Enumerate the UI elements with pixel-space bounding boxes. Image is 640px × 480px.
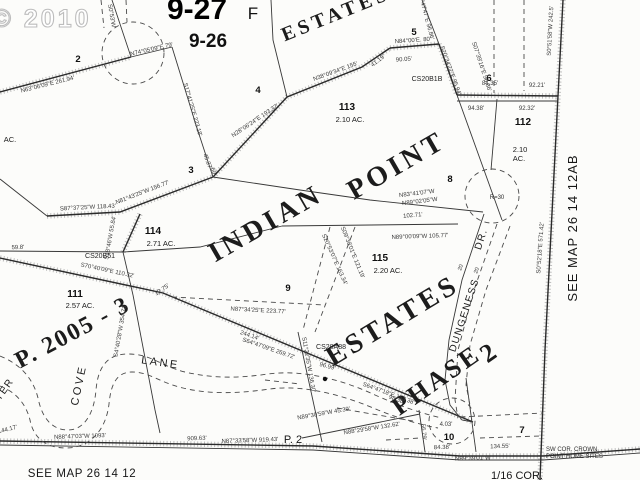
bearing-distance-label: 94.38' — [468, 106, 484, 112]
bearing-distance-label: N89°00'09"W 105.77' — [391, 233, 448, 241]
road-width-20-a: 20 — [457, 264, 465, 272]
bearing-distance-label: 84.38' — [434, 445, 450, 452]
survey-ref-cs20a88: CS20A88 — [316, 344, 346, 351]
bearing-distance-label: N87°33'58"W 919.43' — [221, 437, 278, 445]
parcel-7: 7 — [519, 425, 524, 436]
survey-ref-cs20b1b: CS20B1B — [412, 76, 443, 83]
parcel-3: 3 — [188, 165, 193, 176]
street-ter-partial: TER — [0, 376, 16, 402]
plat-boundary-line — [457, 95, 558, 96]
bearing-distance-label: N74°05'09"E 79' — [130, 42, 174, 58]
bearing-distance-label: N88°47'03"W 1093' — [54, 433, 106, 441]
dashed-survey-line — [172, 297, 325, 305]
bearing-distance-label: S17°41'25"E 223.18' — [182, 83, 203, 137]
see-map-26-14-12ab: SEE MAP 26 14 12AB — [565, 154, 580, 301]
parcel-line — [457, 95, 502, 220]
parcel-2: 2 — [75, 54, 80, 65]
parcel-4: 4 — [255, 85, 261, 96]
survey-monument-dot — [323, 377, 327, 381]
lot-112-acreage: 2.10 — [513, 145, 528, 154]
see-map-26-14-12: SEE MAP 26 14 12 — [28, 468, 136, 480]
parcel-line — [112, 0, 131, 57]
title-indian: INDIAN — [203, 179, 328, 269]
bearing-distance-label: 134.55' — [490, 444, 510, 451]
sixteenth-corner: 1/16 COR. — [491, 470, 543, 480]
bearing-distance-label: S20°34'22"E 95.94' — [438, 45, 461, 95]
lot-111-acreage: 2.57 AC. — [66, 301, 95, 310]
bearing-distance-label: 59.8' — [11, 245, 24, 251]
dashed-survey-line — [466, 226, 510, 405]
title-estates-top: ESTATES — [278, 0, 393, 46]
plat-map-svg: © 20109-279-26FESTATESINDIANPOINTESTATES… — [0, 0, 640, 480]
radius-30-label: R=30 — [490, 195, 505, 201]
parcel-line — [491, 99, 497, 170]
bearing-distance-label: S0°52'18"E 571.42' — [536, 222, 546, 274]
parcel-5: 5 — [411, 27, 417, 38]
page-2-ref: P. 2 — [284, 434, 302, 446]
bearing-distance-label: N89°30'59"W 45.39' — [297, 406, 351, 421]
bearing-distance-label: 84.35' — [482, 81, 498, 87]
lot-115-acreage: 2.20 AC. — [374, 266, 403, 275]
map-number-9-27: 9-27 — [167, 0, 227, 26]
bearing-distance-label: N89°39'01"W — [455, 455, 491, 462]
title-point: POINT — [342, 125, 452, 206]
parcel-line — [282, 224, 458, 226]
bearing-distance-label: S05°47'47"E 96.86' — [415, 0, 434, 40]
dashed-survey-line — [460, 413, 543, 417]
lot-number-112: 112 — [515, 117, 532, 128]
label-f: F — [248, 4, 258, 23]
bearing-distance-label: S20°53'07"E 163.34' — [320, 233, 348, 286]
bearing-distance-label: S11°22'35"W 136.30' — [300, 337, 316, 393]
lot-112-acreage-2: AC. — [513, 154, 526, 163]
lot-113-acreage: 2.10 AC. — [336, 115, 365, 124]
bearing-distance-label: 4.03' — [440, 422, 453, 428]
dashed-survey-line — [386, 438, 420, 440]
parcel-line — [0, 179, 47, 216]
bearing-distance-label: S0°51'58"W 242.5' — [547, 6, 556, 56]
bearing-distance-label: 102.71' — [403, 212, 423, 220]
partial-acreage-left: AC. — [4, 135, 17, 144]
parcel-8: 8 — [447, 174, 452, 185]
lot-114-acreage: 2.71 AC. — [147, 239, 176, 248]
parcel-line — [271, 0, 287, 97]
parcel-9: 9 — [285, 283, 290, 294]
map-number-9-26: 9-26 — [189, 31, 227, 52]
dashed-survey-line — [126, 0, 127, 22]
sw-corner-note-1: SW COR. CROWN — [546, 447, 597, 453]
road-width-20-b: 20 — [473, 267, 481, 275]
bearing-distance-label: N28°06'24"E 193.37' — [231, 103, 280, 139]
street-cove: COVE — [69, 364, 89, 407]
parcel-10: 10 — [444, 432, 455, 443]
dashed-survey-line — [480, 436, 540, 438]
street-dr: DR. — [473, 227, 490, 251]
bearing-distance-label: 90.05' — [396, 56, 413, 63]
copyright-watermark: © 2010 — [0, 5, 91, 33]
plat-boundary-shading — [213, 48, 390, 177]
dashed-survey-line — [101, 0, 104, 28]
plat-boundary-shading — [0, 441, 640, 456]
plat-boundary-line — [123, 214, 140, 252]
bearing-distance-label: N84°00'E. 80' — [395, 37, 432, 46]
dashed-survey-line — [265, 380, 300, 384]
sw-corner-note-2: POINT HOME SITES — [546, 454, 603, 460]
bearing-distance-label: 144.17' — [0, 425, 18, 436]
lot-number-113: 113 — [339, 102, 356, 113]
bearing-distance-label: N87°34'25"E 223.77' — [230, 307, 285, 316]
bearing-distance-label: 56.79' — [419, 424, 426, 441]
plat-boundary-line — [0, 57, 131, 92]
street-lane: LANE — [140, 354, 180, 371]
bearing-distance-label: S64°47'09"E 269.72' — [241, 337, 295, 361]
bearing-distance-label: 92.32' — [519, 106, 535, 112]
bearing-distance-label: 45.27' — [201, 153, 212, 170]
bearing-distance-label: N81°43'25"W 156.77' — [115, 180, 170, 206]
plat-map-page: © 20109-279-26FESTATESINDIANPOINTESTATES… — [0, 0, 640, 480]
bearing-distance-label: 909.63' — [187, 436, 207, 443]
bearing-distance-label: S18°46'W 55.84' — [104, 215, 118, 260]
bearing-distance-label: 92.21' — [529, 83, 545, 89]
lot-number-115: 115 — [372, 253, 389, 264]
lot-number-114: 114 — [145, 226, 162, 237]
lot-number-111: 111 — [67, 289, 83, 300]
